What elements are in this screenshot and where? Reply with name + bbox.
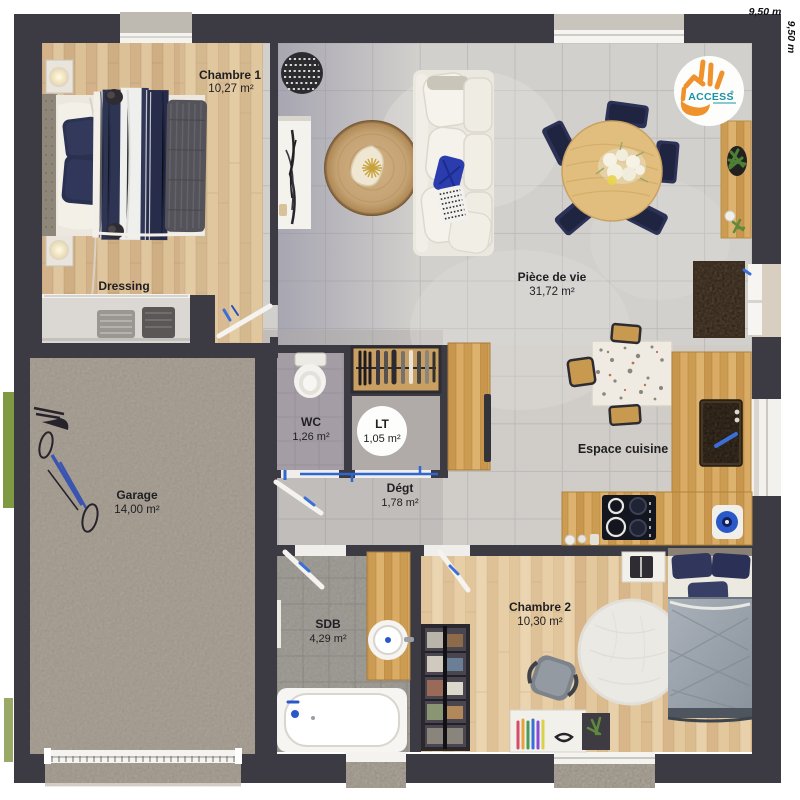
svg-text:ACCESS: ACCESS [688, 91, 734, 103]
svg-text:9,50 m: 9,50 m [785, 21, 797, 54]
svg-text:LT: LT [375, 417, 389, 431]
svg-text:10,27 m²: 10,27 m² [208, 83, 254, 95]
svg-text:Garage: Garage [116, 488, 158, 502]
svg-text:31,72 m²: 31,72 m² [529, 286, 575, 298]
svg-text:Chambre 2: Chambre 2 [509, 600, 571, 614]
svg-text:4,29 m²: 4,29 m² [309, 633, 347, 645]
svg-text:1,78 m²: 1,78 m² [381, 497, 419, 509]
svg-text:WC: WC [301, 415, 321, 429]
svg-text:14,00 m²: 14,00 m² [114, 504, 160, 516]
svg-text:9,50 m: 9,50 m [749, 6, 782, 18]
svg-text:1,26 m²: 1,26 m² [292, 431, 330, 443]
svg-text:Dressing: Dressing [98, 279, 149, 293]
svg-text:10,30 m²: 10,30 m² [517, 616, 563, 628]
svg-text:SDB: SDB [315, 617, 341, 631]
svg-text:Dégt: Dégt [387, 481, 414, 495]
svg-text:Chambre 1: Chambre 1 [199, 68, 261, 82]
svg-text:Espace cuisine: Espace cuisine [578, 442, 668, 456]
svg-text:Pièce de vie: Pièce de vie [518, 270, 587, 284]
svg-text:1,05 m²: 1,05 m² [363, 433, 401, 445]
